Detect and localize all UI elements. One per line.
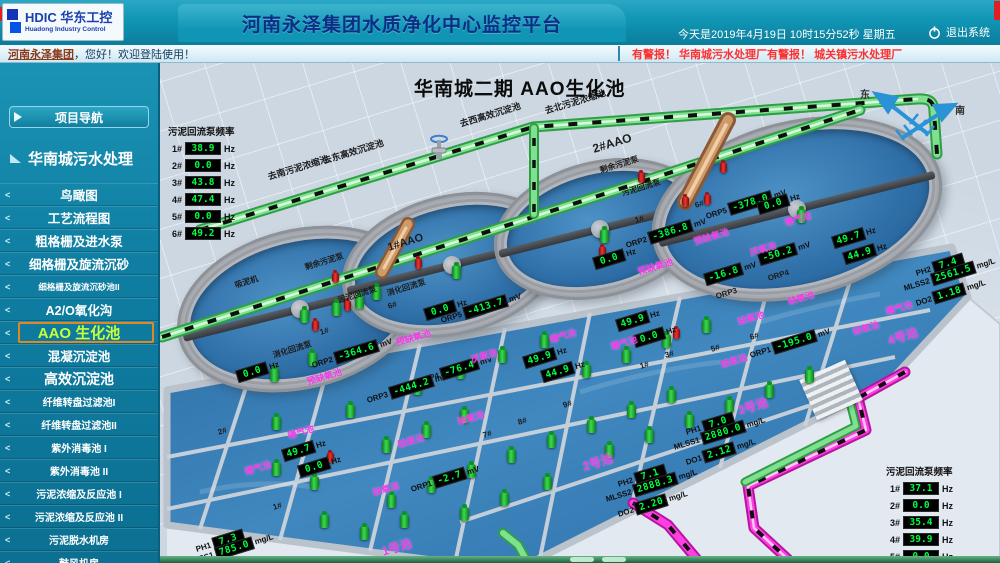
scene-title: 华南城二期 AAO生化池 [414,74,626,101]
sidebar: 项目导航 华南城污水处理 <鸟瞰图<工艺流程图<粗格栅及进水泵<细格栅及旋流沉砂… [0,62,160,563]
welcome-message: 河南永泽集团，您好！欢迎登陆使用！ [8,46,195,62]
sidebar-menu: <鸟瞰图<工艺流程图<粗格栅及进水泵<细格栅及旋流沉砂<细格栅及旋流沉砂池II<… [0,183,158,563]
logo-squares-icon [7,7,21,37]
logout-label: 退出系统 [946,24,990,40]
sidebar-item-15[interactable]: <污泥脱水机房 [0,528,158,551]
pump-icon[interactable] [460,507,469,521]
alarm-ticker: 有警报！ 华南城污水处理厂有警报！ 城关镇污水处理厂 [632,46,902,62]
alarm-led-icon [312,320,319,331]
pump-icon[interactable] [587,419,596,433]
pump-frequency-row: 3#35.4Hz [886,517,953,528]
logo-subtitle: Huadong Industry Control [25,27,112,34]
pump-icon[interactable] [547,434,556,448]
sidebar-item-3[interactable]: <细格栅及旋流沉砂 [0,252,158,275]
sidebar-item-5[interactable]: <A2/O氧化沟 [0,298,158,321]
triangle-icon [10,154,21,163]
alarm-led-icon [415,258,422,269]
pump-icon[interactable] [702,319,711,333]
pipe-network [160,62,1000,563]
datetime-label: 今天是2019年4月19日 10时15分52秒 星期五 [678,26,896,42]
platform-title: 河南永泽集团水质净化中心监控平台 [242,10,562,37]
sidebar-section-huanancheng[interactable]: 华南城污水处理 [10,148,154,169]
pump-icon[interactable] [452,265,461,279]
sidebar-item-13[interactable]: <污泥浓缩及反应池 I [0,482,158,505]
sidebar-item-12[interactable]: <紫外消毒池 II [0,459,158,482]
pump-frequency-row: 6#49.2Hz [168,228,235,239]
pump-icon[interactable] [272,462,281,476]
pump-icon[interactable] [540,334,549,348]
sidebar-item-14[interactable]: <污泥浓缩及反应池 II [0,505,158,528]
pump-icon[interactable] [320,514,329,528]
sludge-pump-panel-left: 污泥回流泵频率 1#38.9Hz2#0.0Hz3#43.8Hz4#47.4Hz5… [168,124,235,245]
sidebar-item-6[interactable]: <AAO 生化池 [0,321,158,344]
sidebar-item-11[interactable]: <紫外消毒池 I [0,436,158,459]
pump-icon[interactable] [645,429,654,443]
band-divider [618,46,620,61]
sidebar-item-16[interactable]: <鼓风机房 [0,551,158,563]
pump-icon[interactable] [400,514,409,528]
arrow-right-icon [14,112,22,122]
pump-icon[interactable] [667,389,676,403]
sidebar-item-2[interactable]: <粗格栅及进水泵 [0,229,158,252]
pump-frequency-row: 2#0.0Hz [886,500,953,511]
company-link[interactable]: 河南永泽集团 [8,49,74,61]
bottom-taskbar [160,556,1000,563]
pump-icon[interactable] [622,349,631,363]
pump-icon[interactable] [805,369,814,383]
alarm-led-icon [682,196,689,207]
pump-icon[interactable] [600,229,609,243]
pump-frequency-row: 3#43.8Hz [168,177,235,188]
alarm-led-icon [720,162,727,173]
alarm-led-icon [332,272,339,283]
pump-icon[interactable] [500,492,509,506]
pump-icon[interactable] [310,476,319,490]
scada-application: HDIC 华东工控 Huadong Industry Control 河南永泽集… [0,0,1000,563]
company-logo: HDIC 华东工控 Huadong Industry Control [2,3,124,41]
pump-icon[interactable] [507,449,516,463]
logout-button[interactable]: 退出系统 [928,24,990,40]
pump-icon[interactable] [272,416,281,430]
pump-icon[interactable] [387,494,396,508]
pump-frequency-row: 2#0.0Hz [168,160,235,171]
sidebar-item-0[interactable]: <鸟瞰图 [0,183,158,206]
pump-icon[interactable] [382,439,391,453]
pump-icon[interactable] [360,526,369,540]
sidebar-item-1[interactable]: <工艺流程图 [0,206,158,229]
pump-frequency-row: 4#47.4Hz [168,194,235,205]
project-nav-button[interactable]: 项目导航 [9,106,149,128]
process-diagram: 华南城二期 AAO生化池 东 南 污泥回流泵频率 1#38.9Hz2#0.0Hz… [160,62,1000,563]
pump-icon[interactable] [498,349,507,363]
platform-title-band: 河南永泽集团水质净化中心监控平台 [178,4,626,42]
pipe-valve[interactable] [428,134,450,160]
logo-title: HDIC 华东工控 [25,11,112,24]
pump-icon[interactable] [300,309,309,323]
sidebar-item-9[interactable]: <纤维转盘过滤池I [0,390,158,413]
pump-icon[interactable] [543,476,552,490]
compass-east-label: 东 [860,86,870,101]
status-band: 河南永泽集团，您好！欢迎登陆使用！ 有警报！ 华南城污水处理厂有警报！ 城关镇污… [0,45,1000,63]
pump-frequency-row: 5#0.0Hz [168,211,235,222]
pump-icon[interactable] [627,404,636,418]
sidebar-item-8[interactable]: <高效沉淀池 [0,367,158,390]
sludge-pump-panel-right: 污泥回流泵频率 1#37.1Hz2#0.0Hz3#35.4Hz4#39.9Hz5… [886,464,953,563]
sidebar-item-4[interactable]: <细格栅及旋流沉砂池II [0,275,158,298]
taskbar-button[interactable] [602,557,626,562]
sidebar-item-10[interactable]: <纤维转盘过滤池II [0,413,158,436]
header-bar: HDIC 华东工控 Huadong Industry Control 河南永泽集… [0,0,1000,45]
pump-frequency-row: 4#39.9Hz [886,534,953,545]
right-red-strip [994,1,1000,20]
sidebar-item-7[interactable]: <混凝沉淀池 [0,344,158,367]
pump-frequency-row: 1#37.1Hz [886,483,953,494]
pump-icon[interactable] [765,384,774,398]
pump-icon[interactable] [346,404,355,418]
taskbar-button[interactable] [570,557,594,562]
alarm-led-icon [704,194,711,205]
power-icon [928,26,941,39]
pump-frequency-row: 1#38.9Hz [168,143,235,154]
compass-south-label: 南 [955,102,965,117]
